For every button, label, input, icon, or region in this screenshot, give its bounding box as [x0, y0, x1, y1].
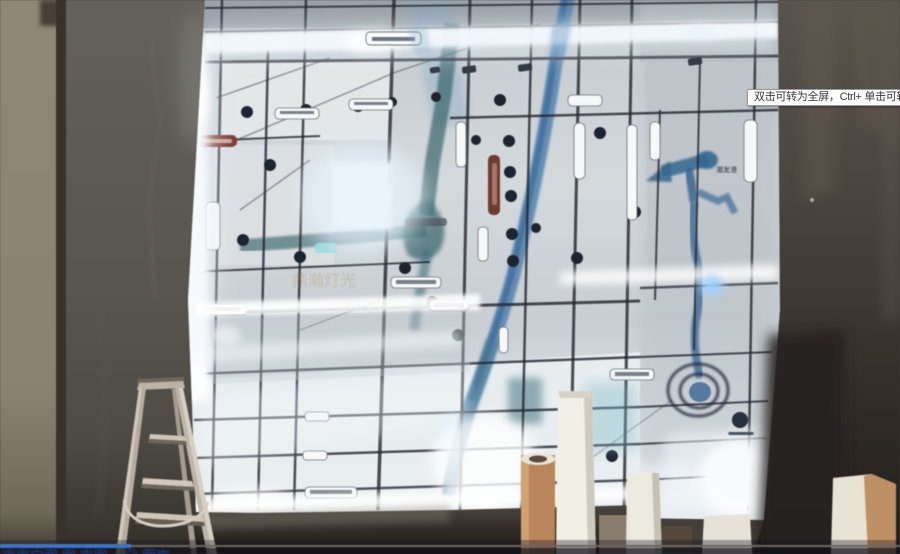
svg-text:潮发港: 潮发港 [716, 165, 737, 174]
svg-text:鼎瀚灯光: 鼎瀚灯光 [292, 272, 356, 290]
svg-text:南南宁图 图 南图 ○ ◎ 图南: 南南宁图 图 南图 ○ ◎ 图南 [2, 548, 170, 554]
